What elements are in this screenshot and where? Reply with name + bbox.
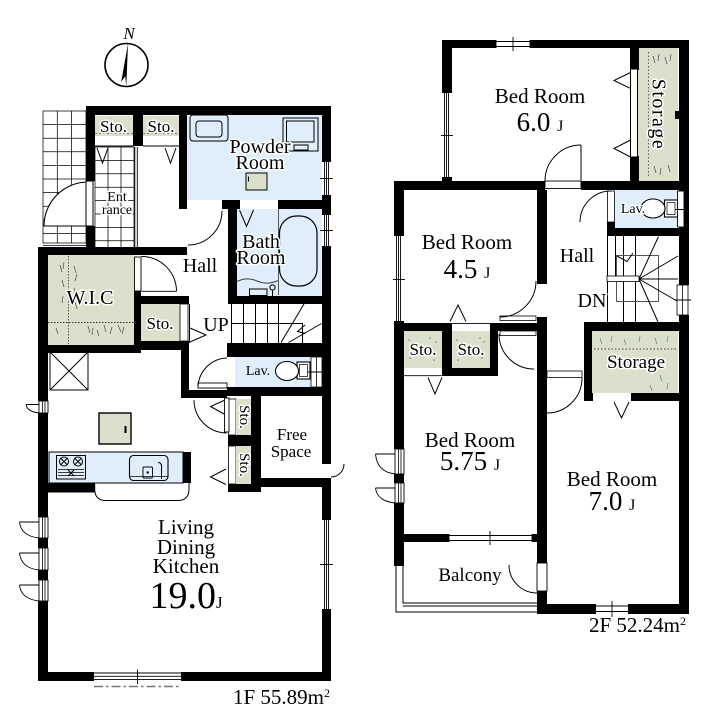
svg-text:Sto.: Sto. bbox=[458, 340, 485, 359]
svg-text:Balcony: Balcony bbox=[438, 565, 502, 586]
svg-text:Lav.: Lav. bbox=[246, 364, 270, 379]
svg-text:Hall: Hall bbox=[560, 245, 595, 267]
svg-text:Sto.: Sto. bbox=[236, 453, 252, 477]
svg-text:4.5 J: 4.5 J bbox=[444, 254, 491, 284]
svg-text:Room: Room bbox=[237, 247, 286, 269]
svg-text:Storage: Storage bbox=[607, 352, 665, 373]
svg-text:19.0J: 19.0J bbox=[149, 575, 223, 617]
svg-text:rance: rance bbox=[102, 203, 132, 218]
svg-text:5.75 J: 5.75 J bbox=[440, 446, 500, 476]
svg-text:Hall: Hall bbox=[183, 255, 218, 277]
svg-text:Space: Space bbox=[271, 442, 312, 461]
svg-text:1F 55.89m2: 1F 55.89m2 bbox=[233, 685, 330, 709]
svg-text:Bed Room: Bed Room bbox=[422, 230, 512, 254]
svg-text:6.0 J: 6.0 J bbox=[517, 107, 564, 137]
svg-text:2F 52.24m2: 2F 52.24m2 bbox=[589, 613, 686, 637]
svg-text:Sto.: Sto. bbox=[410, 340, 437, 359]
svg-text:Bed Room: Bed Room bbox=[495, 84, 585, 108]
svg-text:UP: UP bbox=[203, 314, 229, 336]
svg-text:Lav.: Lav. bbox=[621, 202, 645, 217]
svg-text:DN: DN bbox=[578, 290, 607, 312]
svg-text:Storage: Storage bbox=[648, 79, 670, 151]
svg-text:Sto.: Sto. bbox=[100, 117, 127, 136]
svg-text:Sto.: Sto. bbox=[148, 117, 175, 136]
svg-text:W.I.C: W.I.C bbox=[66, 287, 113, 309]
svg-text:Sto.: Sto. bbox=[236, 405, 252, 429]
svg-text:Sto.: Sto. bbox=[147, 314, 174, 333]
svg-text:N: N bbox=[122, 24, 136, 43]
svg-text:Room: Room bbox=[236, 152, 285, 174]
svg-text:7.0 J: 7.0 J bbox=[589, 486, 636, 516]
